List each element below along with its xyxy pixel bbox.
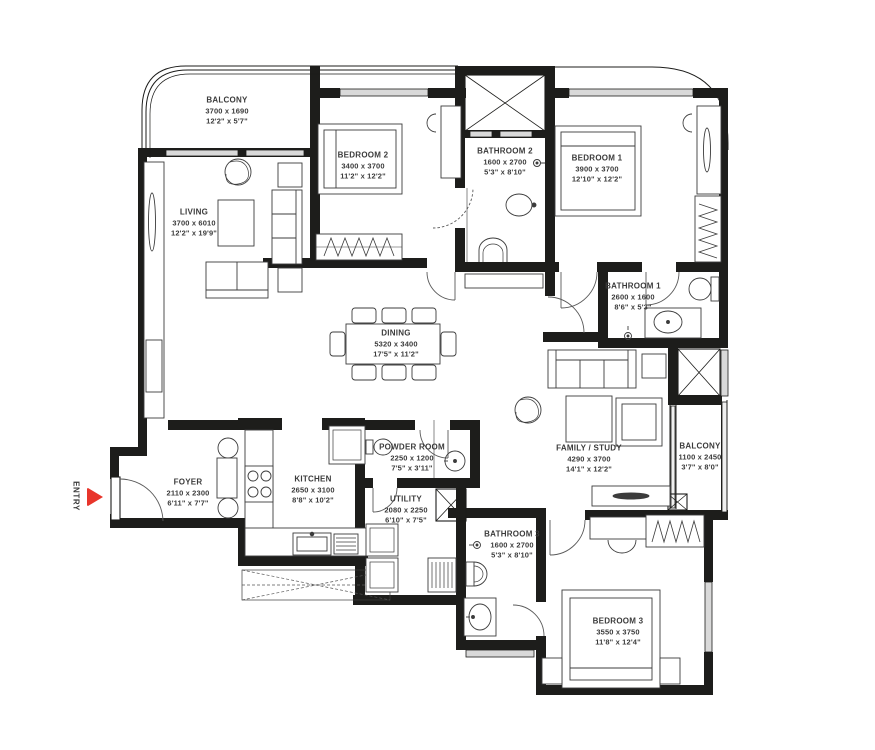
room-dim-imperial: 12'10" x 12'2": [572, 174, 623, 184]
room-dim-imperial: 12'2" x 5'7": [205, 116, 248, 126]
room-name: UTILITY: [384, 494, 427, 505]
entry-label: ENTRY: [72, 481, 81, 511]
room-name: BEDROOM 2: [338, 150, 389, 161]
refrigerator: [329, 426, 365, 464]
sofa: [272, 190, 302, 264]
room-dim-metric: 1100 x 2450: [679, 452, 722, 462]
side-table: [278, 163, 302, 187]
desk: [590, 517, 652, 539]
nightstand: [660, 658, 680, 684]
side-table: [278, 268, 302, 292]
washer: [366, 524, 398, 556]
room-label-balcony-top: BALCONY 3700 x 1690 12'2" x 5'7": [205, 95, 248, 126]
sink: [293, 533, 331, 555]
room-dim-metric: 2080 x 2250: [384, 505, 427, 515]
entry-arrow: [87, 488, 102, 506]
room-dim-imperial: 5'3" x 8'10": [484, 550, 540, 560]
door-stopper-icon: [534, 160, 546, 167]
room-label-bedroom-2: BEDROOM 2 3400 x 3700 11'2" x 12'2": [338, 150, 389, 181]
floorplan-canvas: BALCONY 3700 x 1690 12'2" x 5'7" BEDROOM…: [0, 0, 875, 750]
room-name: BALCONY: [679, 441, 722, 452]
room-dim-metric: 3700 x 6010: [171, 218, 217, 228]
sideboard: [465, 274, 543, 288]
toilet-tank: [466, 562, 474, 586]
room-dim-imperial: 8'6" x 5'3": [605, 302, 661, 312]
room-label-bedroom-1: BEDROOM 1 3900 x 3700 12'10" x 12'2": [572, 153, 623, 184]
basin: [506, 194, 532, 216]
room-label-bathroom-2: BATHROOM 2 1600 x 2700 5'3" x 8'10": [477, 146, 533, 177]
living-furniture: [144, 159, 302, 418]
room-dim-metric: 2600 x 1600: [605, 292, 661, 302]
room-dim-imperial: 11'2" x 12'2": [338, 171, 389, 181]
room-dim-metric: 3900 x 3700: [572, 164, 623, 174]
room-dim-metric: 2250 x 1200: [379, 453, 445, 463]
wall-lamp: [683, 114, 692, 132]
room-name: FOYER: [167, 477, 210, 488]
stool: [218, 438, 238, 458]
dining-chair: [352, 308, 376, 323]
wardrobe: [646, 515, 704, 547]
dining-chair: [330, 332, 345, 356]
room-label-living: LIVING 3700 x 6010 12'2" x 19'9": [171, 207, 217, 238]
washer: [366, 558, 398, 592]
room-name: POWDER ROOM: [379, 442, 445, 453]
room-dim-metric: 1600 x 2700: [484, 540, 540, 550]
toilet: [689, 278, 711, 300]
toilet: [474, 562, 487, 586]
drainboard: [334, 534, 358, 554]
room-label-dining: DINING 5320 x 3400 17'5" x 11'2": [373, 328, 419, 359]
room-dim-metric: 2110 x 2300: [167, 488, 210, 498]
stool: [608, 540, 636, 553]
foyer-furniture: [217, 438, 238, 518]
armchair: [616, 398, 662, 446]
room-label-bedroom-3: BEDROOM 3 3550 x 3750 11'8" x 12'4": [593, 616, 644, 647]
door-stopper-icon: [469, 542, 481, 549]
room-name: LIVING: [171, 207, 217, 218]
bedroom2-furniture: [316, 106, 461, 260]
dining-chair: [352, 365, 376, 380]
planter: [515, 397, 541, 423]
room-dim-imperial: 14'1" x 12'2": [556, 464, 622, 474]
room-dim-metric: 4290 x 3700: [556, 454, 622, 464]
wall-lamp: [427, 114, 436, 132]
room-label-kitchen: KITCHEN 2650 x 3100 8'8" x 10'2": [291, 474, 334, 505]
room-dim-metric: 1600 x 2700: [477, 157, 533, 167]
toilet-tank: [366, 440, 373, 454]
room-name: FAMILY / STUDY: [556, 443, 622, 454]
room-label-family-study: FAMILY / STUDY 4290 x 3700 14'1" x 12'2": [556, 443, 622, 474]
room-label-powder-room: POWDER ROOM 2250 x 1200 7'5" x 3'11": [379, 442, 445, 473]
room-name: BATHROOM 3: [484, 529, 540, 540]
room-name: BEDROOM 3: [593, 616, 644, 627]
room-label-foyer: FOYER 2110 x 2300 6'11" x 7'7": [167, 477, 210, 508]
room-name: BATHROOM 1: [605, 281, 661, 292]
room-name: DINING: [373, 328, 419, 339]
accent-chair: [225, 159, 251, 185]
room-dim-imperial: 7'5" x 3'11": [379, 463, 445, 473]
room-dim-metric: 3400 x 3700: [338, 161, 389, 171]
room-dim-imperial: 6'10" x 7'5": [384, 515, 427, 525]
room-dim-imperial: 5'3" x 8'10": [477, 167, 533, 177]
dresser: [441, 106, 461, 178]
room-label-bathroom-1: BATHROOM 1 2600 x 1600 8'6" x 5'3": [605, 281, 661, 312]
bedroom3-furniture: [542, 515, 704, 688]
stool: [218, 498, 238, 518]
room-dim-metric: 5320 x 3400: [373, 339, 419, 349]
room-name: BATHROOM 2: [477, 146, 533, 157]
room-dim-metric: 2650 x 3100: [291, 485, 334, 495]
room-dim-imperial: 12'2" x 19'9": [171, 228, 217, 238]
room-dim-metric: 3550 x 3750: [593, 627, 644, 637]
room-dim-imperial: 17'5" x 11'2": [373, 349, 419, 359]
bathroom2-fixtures: [467, 188, 536, 262]
dining-chair: [412, 365, 436, 380]
entry-door-leaf: [111, 477, 120, 520]
room-name: KITCHEN: [291, 474, 334, 485]
door-stopper-icon: [625, 326, 632, 340]
toilet-tank: [711, 277, 719, 301]
study-table: [566, 396, 612, 442]
dining-chair: [412, 308, 436, 323]
room-name: BEDROOM 1: [572, 153, 623, 164]
dining-chair: [382, 365, 406, 380]
room-dim-metric: 3700 x 1690: [205, 106, 248, 116]
room-dim-imperial: 6'11" x 7'7": [167, 498, 210, 508]
dining-chair: [441, 332, 456, 356]
dresser: [697, 106, 721, 194]
room-label-bathroom-3: BATHROOM 3 1600 x 2700 5'3" x 8'10": [484, 529, 540, 560]
room-dim-imperial: 8'8" x 10'2": [291, 495, 334, 505]
room-dim-imperial: 3'7" x 8'0": [679, 462, 722, 472]
nightstand: [542, 658, 562, 684]
room-label-utility: UTILITY 2080 x 2250 6'10" x 7'5": [384, 494, 427, 525]
side-table: [642, 354, 666, 378]
sofa: [548, 350, 636, 388]
utility-furniture: [366, 524, 456, 592]
room-label-balcony-right: BALCONY 1100 x 2450 3'7" x 8'0": [679, 441, 722, 472]
dining-chair: [382, 308, 406, 323]
floorplan-drawing: [0, 0, 875, 750]
room-dim-imperial: 11'8" x 12'4": [593, 637, 644, 647]
console-table: [217, 458, 237, 498]
louver-door: [428, 558, 456, 592]
room-name: BALCONY: [205, 95, 248, 106]
coffee-table: [218, 200, 254, 246]
